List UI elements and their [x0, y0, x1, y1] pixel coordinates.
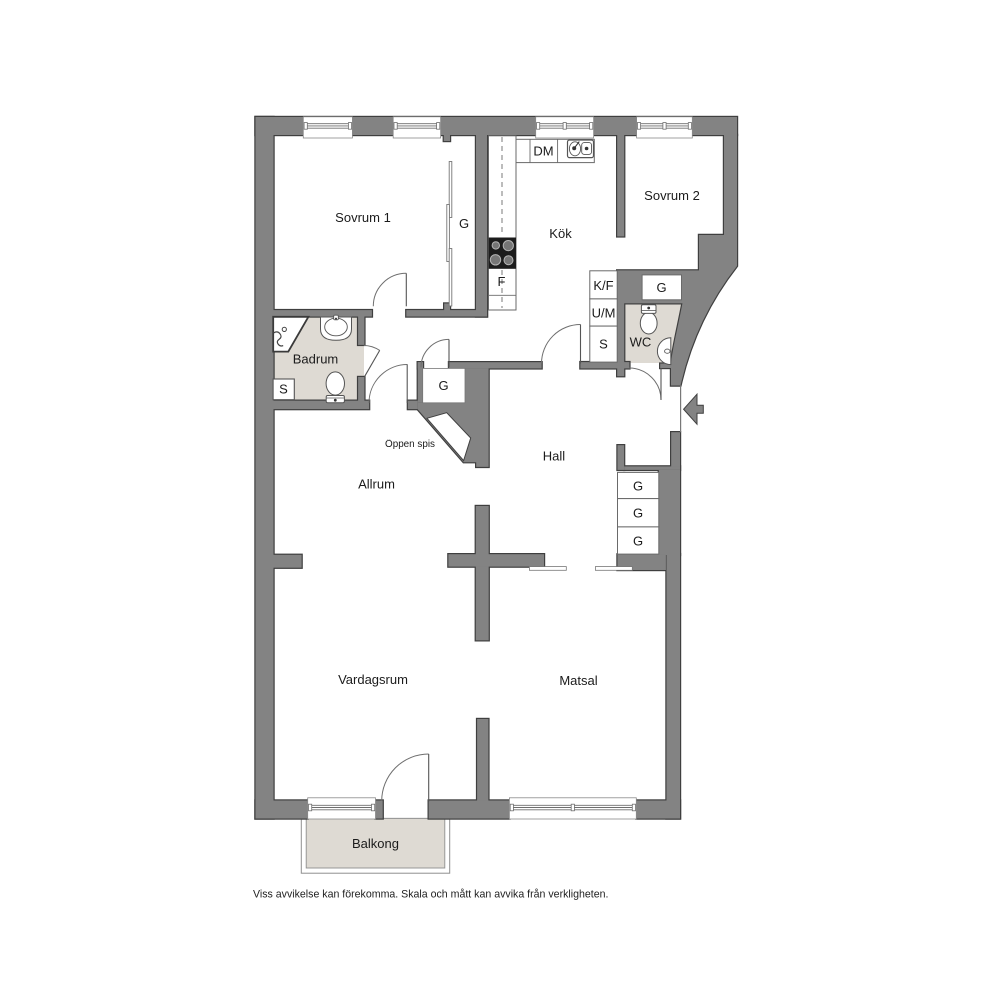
- svg-text:U/M: U/M: [592, 306, 616, 321]
- svg-text:Allrum: Allrum: [358, 477, 395, 492]
- svg-text:Vardagsrum: Vardagsrum: [338, 672, 408, 687]
- svg-text:Matsal: Matsal: [559, 673, 597, 688]
- svg-text:Balkong: Balkong: [352, 836, 399, 851]
- svg-text:G: G: [633, 506, 643, 521]
- svg-text:G: G: [656, 280, 666, 295]
- svg-text:Kök: Kök: [549, 226, 572, 241]
- svg-text:WC: WC: [630, 335, 652, 350]
- svg-text:Badrum: Badrum: [293, 352, 339, 367]
- svg-text:G: G: [633, 479, 643, 494]
- svg-text:S: S: [279, 382, 288, 397]
- svg-text:S: S: [599, 337, 608, 352]
- svg-text:K/F: K/F: [593, 278, 613, 293]
- svg-text:G: G: [438, 378, 448, 393]
- svg-text:DM: DM: [533, 144, 553, 159]
- svg-text:G: G: [459, 216, 469, 231]
- svg-text:Viss avvikelse kan förekomma.: Viss avvikelse kan förekomma. Skala och …: [253, 889, 608, 901]
- svg-text:F: F: [498, 274, 506, 289]
- svg-text:Öppen spis: Öppen spis: [385, 439, 435, 450]
- svg-text:Sovrum 1: Sovrum 1: [335, 210, 391, 225]
- svg-text:Sovrum 2: Sovrum 2: [644, 188, 700, 203]
- svg-text:Hall: Hall: [543, 449, 566, 464]
- svg-text:G: G: [633, 534, 643, 549]
